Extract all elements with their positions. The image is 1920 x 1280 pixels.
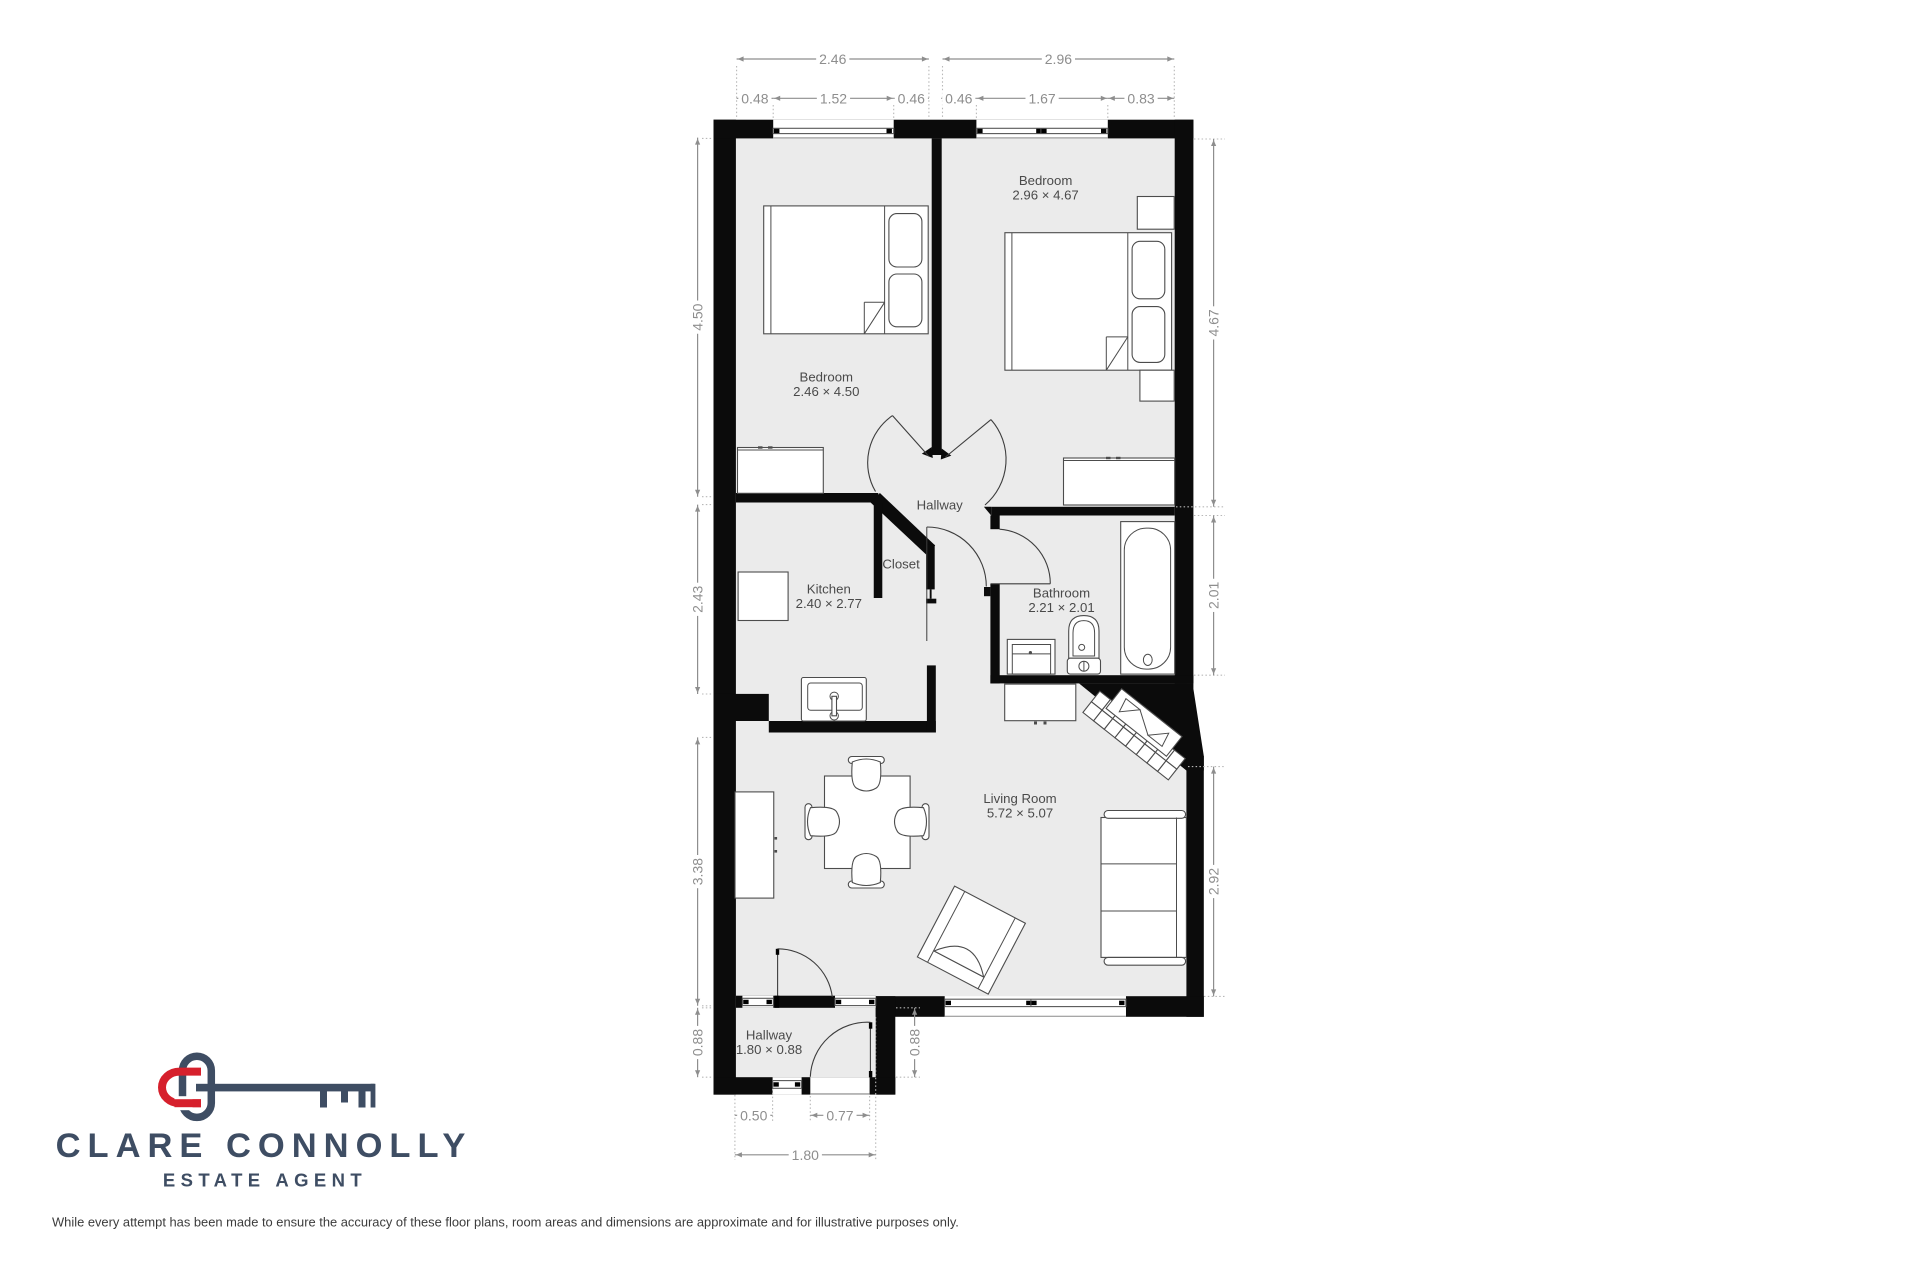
svg-text:Closet: Closet <box>882 557 920 572</box>
svg-text:2.40 × 2.77: 2.40 × 2.77 <box>796 596 862 611</box>
svg-text:1.67: 1.67 <box>1028 90 1055 106</box>
svg-text:3.38: 3.38 <box>690 858 706 885</box>
svg-text:2.96: 2.96 <box>1045 51 1072 67</box>
svg-text:1.80: 1.80 <box>792 1147 819 1163</box>
svg-text:2.46 × 4.50: 2.46 × 4.50 <box>793 384 859 399</box>
svg-text:2.43: 2.43 <box>690 585 706 612</box>
svg-text:2.21 × 2.01: 2.21 × 2.01 <box>1028 600 1094 615</box>
svg-text:1.52: 1.52 <box>820 90 847 106</box>
svg-text:2.92: 2.92 <box>1206 868 1222 895</box>
svg-text:0.50: 0.50 <box>740 1107 767 1123</box>
svg-text:0.83: 0.83 <box>1127 90 1154 106</box>
svg-text:CLARE CONNOLLY: CLARE CONNOLLY <box>56 1127 473 1165</box>
svg-text:Bedroom: Bedroom <box>1019 173 1073 188</box>
svg-text:Bathroom: Bathroom <box>1033 586 1090 601</box>
svg-text:0.77: 0.77 <box>826 1107 853 1123</box>
svg-text:ESTATE AGENT: ESTATE AGENT <box>163 1170 367 1191</box>
svg-text:While every attempt has been m: While every attempt has been made to ens… <box>52 1215 959 1230</box>
svg-text:0.88: 0.88 <box>907 1029 923 1056</box>
svg-text:Living Room: Living Room <box>983 791 1056 806</box>
svg-text:1.80 × 0.88: 1.80 × 0.88 <box>736 1042 802 1057</box>
svg-text:0.46: 0.46 <box>898 90 925 106</box>
svg-text:2.96 × 4.67: 2.96 × 4.67 <box>1012 188 1078 203</box>
svg-text:Hallway: Hallway <box>917 498 964 513</box>
svg-text:0.46: 0.46 <box>945 90 972 106</box>
svg-text:Hallway: Hallway <box>746 1028 793 1043</box>
svg-text:2.01: 2.01 <box>1206 582 1222 609</box>
svg-text:5.72 × 5.07: 5.72 × 5.07 <box>987 806 1053 821</box>
svg-text:4.50: 4.50 <box>690 303 706 330</box>
svg-text:Kitchen: Kitchen <box>807 582 851 597</box>
svg-text:0.48: 0.48 <box>741 90 768 106</box>
svg-text:0.88: 0.88 <box>690 1029 706 1056</box>
svg-text:4.67: 4.67 <box>1206 309 1222 336</box>
svg-text:2.46: 2.46 <box>819 51 846 67</box>
svg-text:Bedroom: Bedroom <box>800 370 854 385</box>
